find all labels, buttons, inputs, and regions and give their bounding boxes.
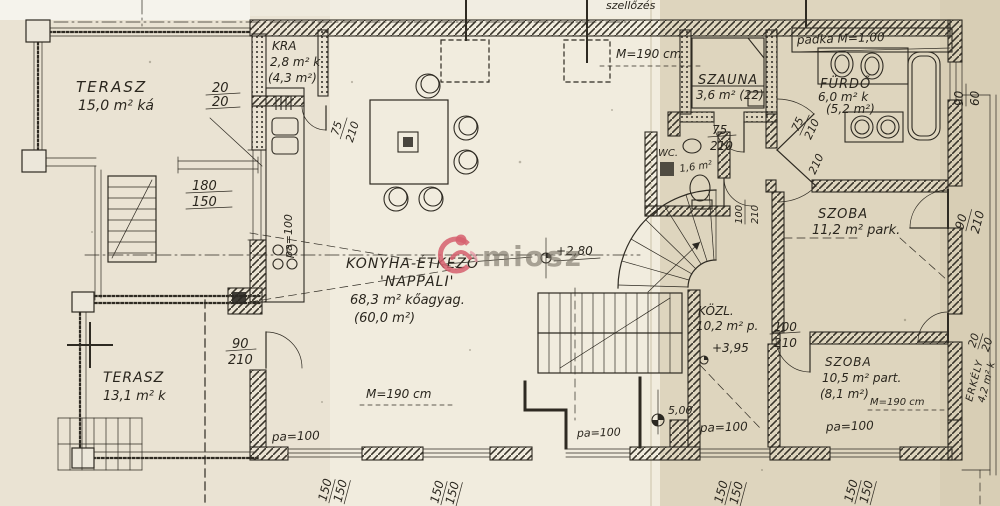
- level-500: 5,00: [668, 404, 693, 417]
- pa100-del2: pa=100: [825, 418, 875, 434]
- level-395: +3,95: [712, 341, 749, 355]
- ceiling-height-bottom: M=190 cm: [366, 387, 431, 401]
- dim-60-furdo-ablak: 60: [968, 90, 982, 106]
- dim-pa100-konyha: pa=100: [282, 214, 295, 259]
- bath-area-net: (5,2 m²): [826, 102, 875, 116]
- wc-name: WC.: [658, 148, 678, 159]
- living-area-net: (60,0 m²): [354, 311, 415, 326]
- pa100-konyha: pa=100: [282, 214, 295, 259]
- living-name-2: 'NAPPALI': [380, 274, 454, 290]
- bedroom2-height: M=190 cm: [870, 397, 925, 408]
- watermark-text: miosz: [482, 240, 583, 273]
- bedroom2-area-net: (8,1 m²): [820, 387, 869, 401]
- dim-75-szauna: 75: [712, 123, 727, 137]
- kra-name: KRA: [272, 39, 296, 53]
- pa100-terasz: pa=100: [271, 428, 321, 444]
- bedroom2-name: SZOBA: [825, 355, 872, 369]
- terrace-lower-area: 13,1 m² k: [103, 389, 166, 404]
- sauna-area: 3,6 m² (22): [696, 88, 764, 102]
- dim-100-szoba: 100: [774, 320, 797, 334]
- pa100-bejarat: pa=100: [576, 425, 621, 440]
- kra-area-net: (4,3 m²): [268, 71, 317, 85]
- terrace-lower-name: TERASZ: [103, 370, 164, 386]
- bedroom1-area: 11,2 m² park.: [812, 223, 900, 238]
- dim-210-terasz: 210: [228, 353, 253, 368]
- floorplan-drawing: TERASZ 15,0 m² ká TERASZ 13,1 m² k: [0, 0, 1000, 506]
- hall-name: KÖZL.: [698, 302, 734, 318]
- szellozes-note: szellőzés: [606, 0, 656, 12]
- dim-100-wc: 100: [734, 205, 745, 224]
- bedroom2-area: 10,5 m² part.: [822, 371, 901, 385]
- floorplan-scan: TERASZ 15,0 m² ká TERASZ 13,1 m² k: [0, 0, 1000, 506]
- dim-90-furdo-ablak: 90: [952, 90, 966, 106]
- ceiling-height-top: M=190 cm: [616, 47, 681, 61]
- terrace-upper-name: TERASZ: [76, 78, 147, 96]
- kra-area: 2,8 m² k: [270, 55, 321, 69]
- living-area: 68,3 m² kőagyag.: [350, 293, 465, 308]
- sauna-name: SZAUNA: [698, 73, 758, 88]
- hall-area: 10,2 m² p.: [696, 319, 758, 333]
- terrace-upper-area: 15,0 m² ká: [78, 98, 154, 114]
- bedroom1-name: SZOBA: [818, 207, 868, 222]
- dim-210-wc: 210: [750, 205, 761, 224]
- pa100-del1: pa=100: [699, 419, 749, 435]
- dim-210-szoba: 210: [774, 336, 797, 350]
- dim-210-szauna: 210: [710, 139, 733, 153]
